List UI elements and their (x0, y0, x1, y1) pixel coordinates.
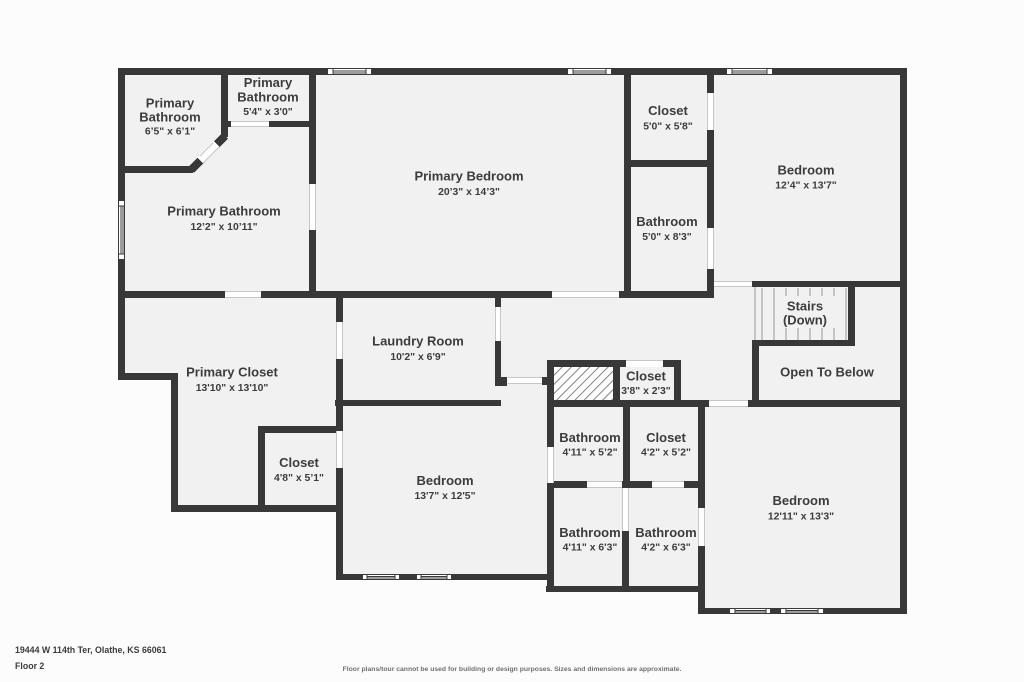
svg-text:19444 W 114th Ter, Olathe, KS: 19444 W 114th Ter, Olathe, KS 66061 (15, 645, 167, 655)
svg-text:Floor plans/tour cannot be use: Floor plans/tour cannot be used for buil… (343, 666, 682, 673)
svg-text:Bathroom: Bathroom (559, 525, 620, 540)
svg-text:Closet: Closet (648, 103, 688, 118)
svg-text:Bedroom: Bedroom (777, 163, 834, 178)
svg-text:Bedroom: Bedroom (772, 493, 829, 508)
svg-text:5'0" x 5'8": 5'0" x 5'8" (643, 122, 693, 133)
svg-text:10'2" x 6'9": 10'2" x 6'9" (390, 352, 445, 363)
svg-text:6’5" x 6’1": 6’5" x 6’1" (145, 127, 195, 138)
svg-text:Primary Bathroom: Primary Bathroom (167, 204, 280, 219)
svg-text:5'4" x 3'0": 5'4" x 3'0" (243, 107, 293, 118)
svg-text:4'2" x 6'3": 4'2" x 6'3" (641, 543, 691, 554)
svg-text:Bathroom: Bathroom (237, 90, 298, 105)
svg-text:4'2" x 5’2": 4'2" x 5’2" (641, 448, 691, 459)
svg-text:12’4" x 13'7": 12’4" x 13'7" (775, 181, 837, 192)
svg-text:Primary Closet: Primary Closet (186, 365, 278, 380)
svg-text:Primary: Primary (146, 96, 195, 111)
svg-text:3'8" x 2'3": 3'8" x 2'3" (621, 386, 671, 397)
svg-text:Bathroom: Bathroom (636, 214, 697, 229)
svg-text:13'7" x 12'5": 13'7" x 12'5" (414, 491, 475, 502)
svg-text:Closet: Closet (646, 430, 686, 445)
svg-text:Closet: Closet (279, 455, 319, 470)
svg-text:4'8" x 5’1": 4'8" x 5’1" (274, 473, 324, 484)
svg-text:12’2" x 10’11": 12’2" x 10’11" (190, 222, 257, 233)
svg-text:4'11" x 6'3": 4'11" x 6'3" (563, 543, 618, 554)
svg-text:Primary: Primary (244, 75, 293, 90)
svg-text:20’3" x 14’3": 20’3" x 14’3" (438, 187, 500, 198)
svg-text:(Down): (Down) (783, 313, 827, 328)
svg-text:Stairs: Stairs (787, 299, 823, 314)
svg-text:Bathroom: Bathroom (635, 525, 696, 540)
svg-text:Bathroom: Bathroom (559, 430, 620, 445)
svg-text:Primary Bedroom: Primary Bedroom (414, 169, 523, 184)
svg-text:Floor 2: Floor 2 (15, 661, 44, 671)
svg-text:Open To Below: Open To Below (780, 365, 875, 380)
svg-text:4'11" x 5’2": 4'11" x 5’2" (562, 448, 617, 459)
svg-text:Laundry Room: Laundry Room (372, 334, 464, 349)
svg-text:12'11" x 13'3": 12'11" x 13'3" (768, 512, 834, 523)
svg-text:13'10" x 13'10": 13'10" x 13'10" (196, 383, 269, 394)
svg-text:Closet: Closet (626, 369, 666, 384)
svg-text:5'0" x 8'3": 5'0" x 8'3" (642, 232, 692, 243)
svg-text:Bedroom: Bedroom (416, 473, 473, 488)
svg-text:Bathroom: Bathroom (139, 110, 200, 125)
